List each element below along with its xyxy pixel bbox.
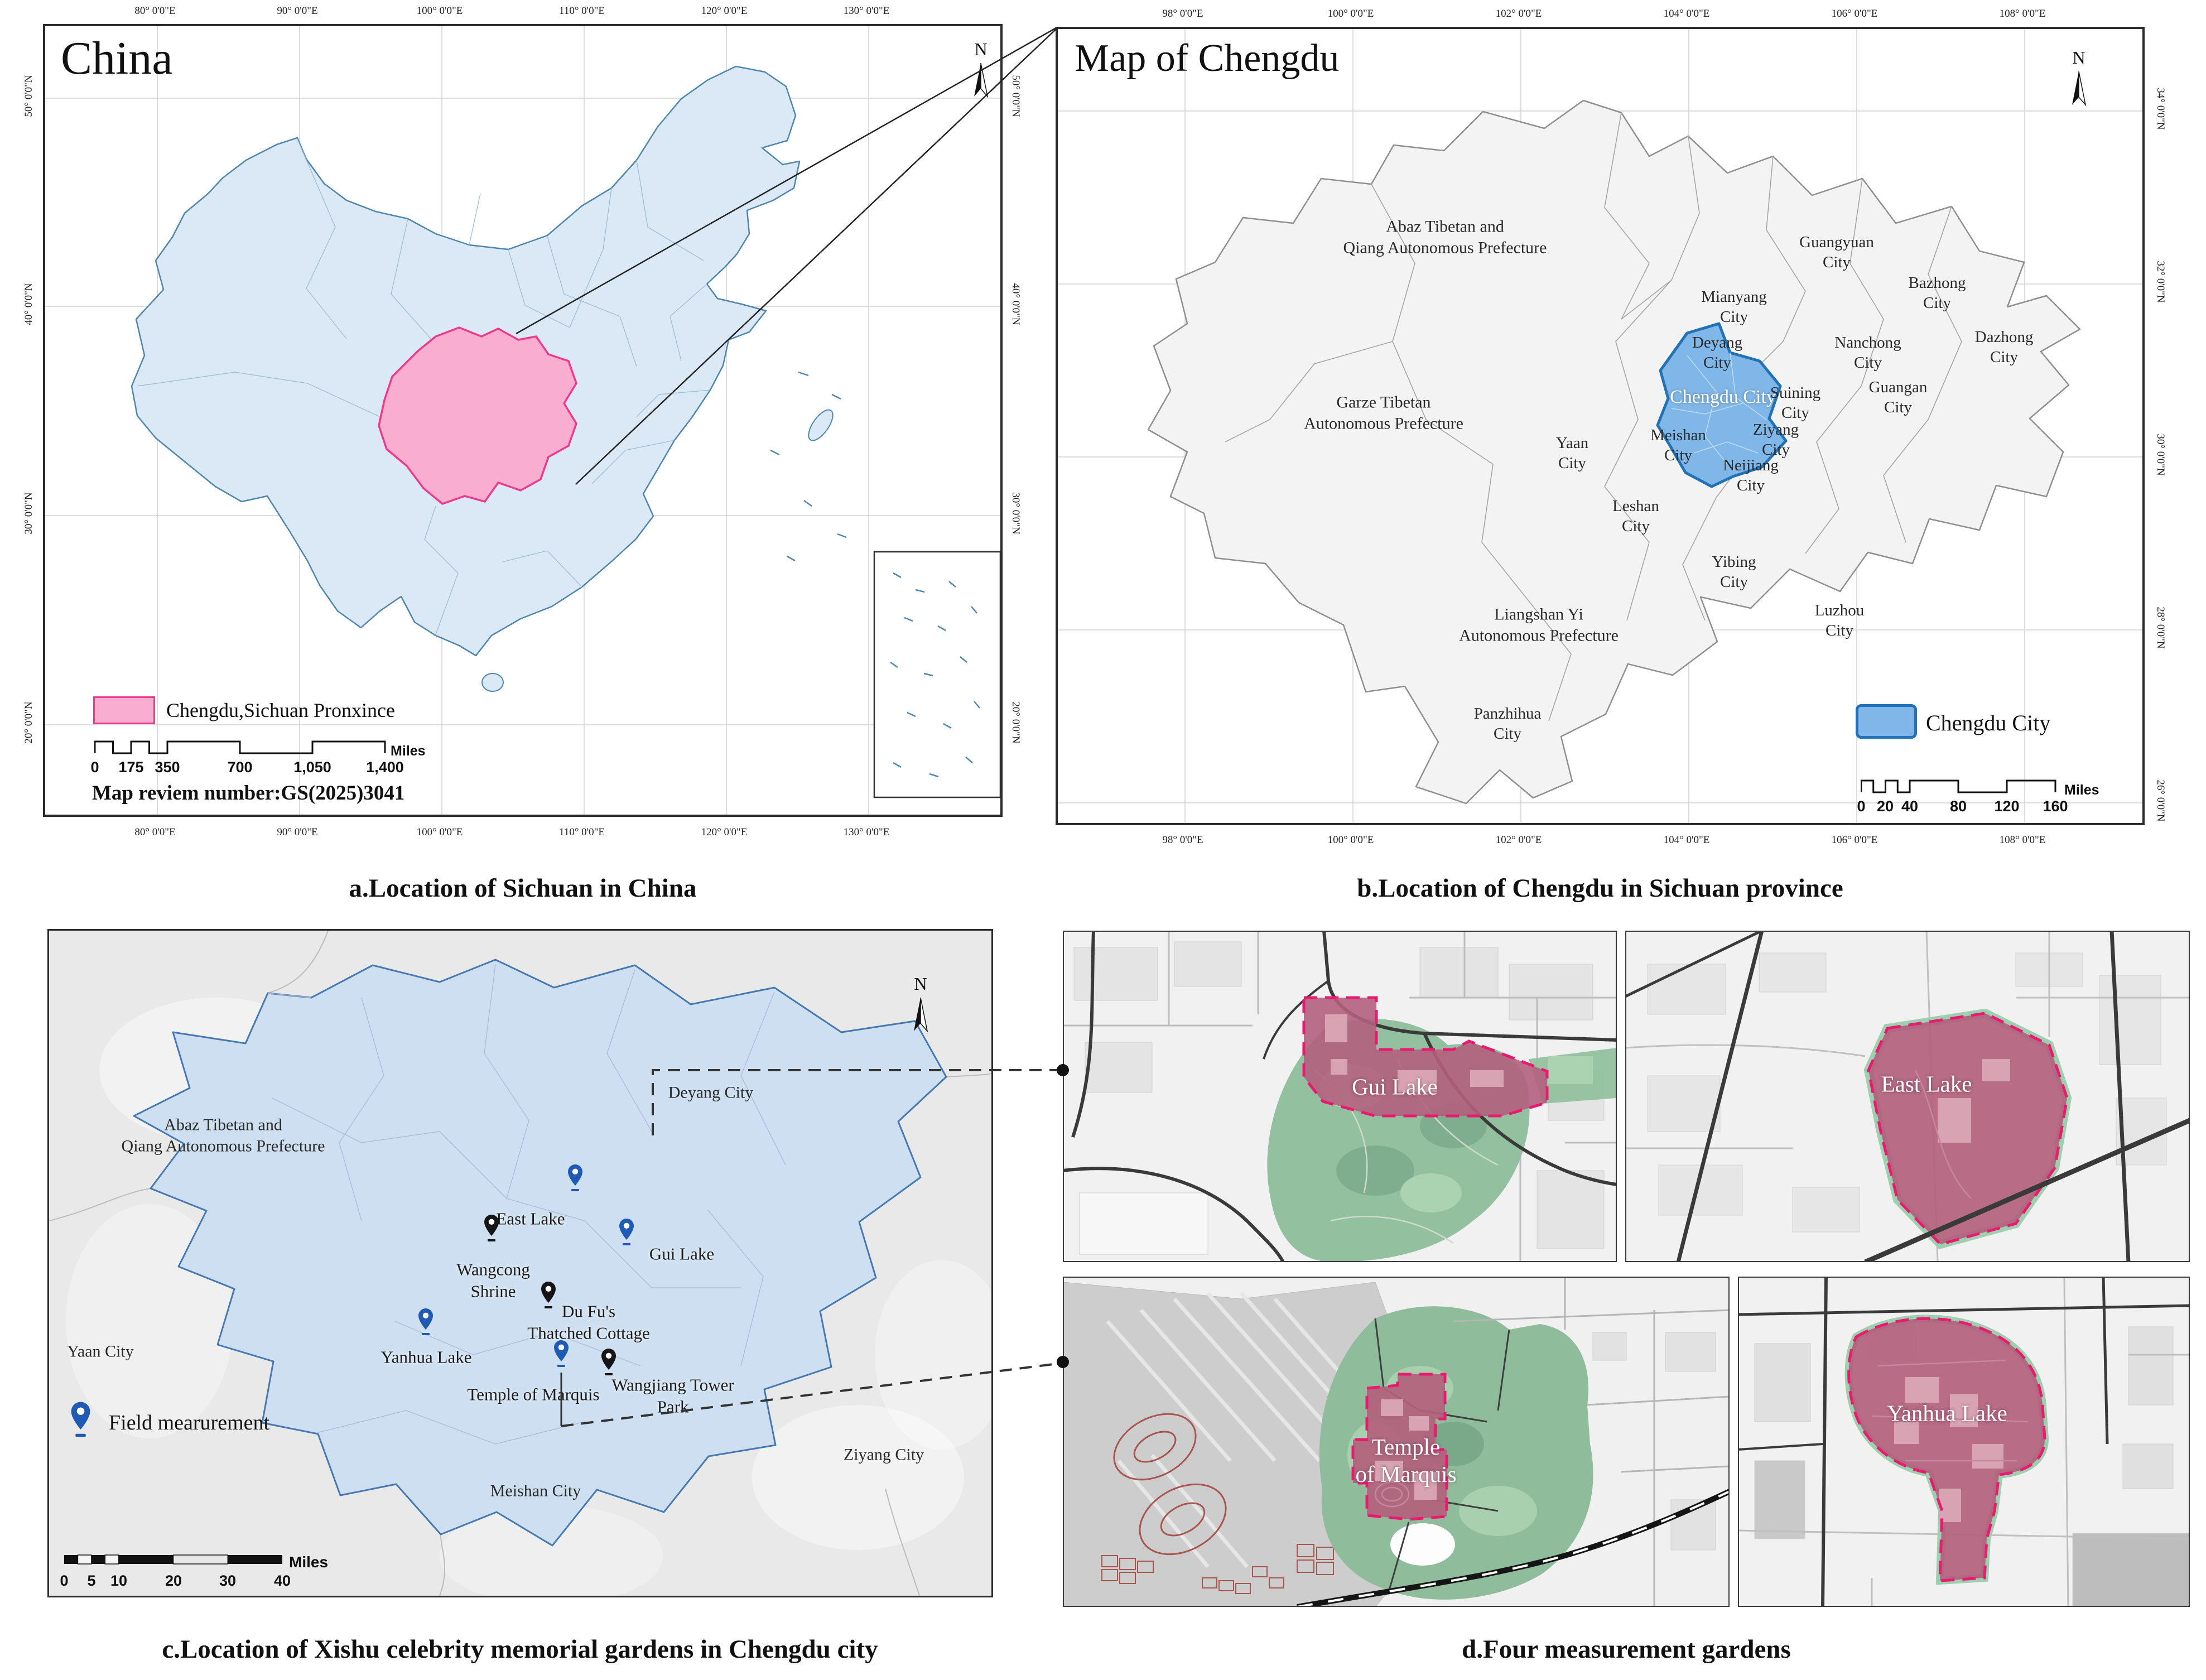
a-xtick-top-5: 130° 0'0"E xyxy=(844,5,890,17)
temple-of-marquis-pin-icon xyxy=(553,1339,570,1371)
scalebar-c-unit: Miles xyxy=(289,1553,328,1571)
scalebar-b-unit: Miles xyxy=(2064,782,2099,798)
region-panzhihua: Panzhihua City xyxy=(1474,704,1542,744)
north-arrow-b: N xyxy=(2068,47,2090,113)
tile-yanhua-lake xyxy=(1738,1277,2190,1607)
c-label-deyang: Deyang City xyxy=(668,1082,753,1103)
field-measurement-pin-icon xyxy=(70,1400,91,1442)
north-label-c: N xyxy=(909,974,932,994)
figure-page: { "colors": { "china_fill": "#dbe9f6", "… xyxy=(0,0,2206,1680)
scalebar-b-4: 120 xyxy=(1994,798,2019,815)
a-ytick-left-0: 50° 0'0"N xyxy=(23,75,35,117)
region-guangan: Guangan City xyxy=(1869,377,1928,418)
map-review-note: Map reviem number:GS(2025)3041 xyxy=(92,781,404,805)
north-label-b: N xyxy=(2068,47,2090,68)
scalebar-c-3: 20 xyxy=(165,1572,182,1590)
yanhua-lake-label: Yanhua Lake xyxy=(380,1347,471,1369)
garden-label-temple: Temple of Marquis xyxy=(1355,1433,1456,1488)
scalebar-a-4: 1,050 xyxy=(293,759,331,776)
scalebar-c-1: 5 xyxy=(87,1572,95,1590)
scalebar-a-1: 175 xyxy=(118,759,143,776)
caption-b: b.Location of Chengdu in Sichuan provinc… xyxy=(1357,873,1843,903)
region-neijiang: Neijiang City xyxy=(1723,455,1779,496)
scalebar-a-0: 0 xyxy=(90,759,99,776)
a-xtick-top-2: 100° 0'0"E xyxy=(417,5,463,17)
legend-a-swatch xyxy=(93,696,155,724)
scalebar-a-2: 350 xyxy=(155,759,180,776)
region-yibing: Yibing City xyxy=(1712,552,1756,593)
panel-a-title: China xyxy=(61,35,173,82)
region-dazhong: Dazhong City xyxy=(1975,327,2034,368)
north-arrow-a: N xyxy=(970,39,992,105)
caption-c: c.Location of Xishu celebrity memorial g… xyxy=(162,1634,878,1664)
region-chengdu: Chengdu City xyxy=(1670,386,1776,410)
region-meishan: Meishan City xyxy=(1650,425,1706,466)
region-guangyuan: Guangyuan City xyxy=(1799,232,1874,273)
gui-lake-pin-icon xyxy=(618,1217,635,1249)
b-xtick-bot-1: 100° 0'0"E xyxy=(1328,834,1374,846)
north-arrow-b-icon xyxy=(2069,69,2088,110)
region-luzhou: Luzhou City xyxy=(1815,600,1865,641)
b-xtick-top-2: 102° 0'0"E xyxy=(1496,8,1542,20)
legend-b-swatch xyxy=(1856,704,1917,739)
a-xtick-top-0: 80° 0'0"E xyxy=(134,5,175,17)
a-xtick-top-1: 90° 0'0"E xyxy=(277,5,317,17)
a-ytick-right-2: 30° 0'0"N xyxy=(1009,492,1022,534)
b-xtick-bot-2: 102° 0'0"E xyxy=(1496,834,1542,846)
hainan-island xyxy=(482,673,503,691)
north-arrow-c: N xyxy=(909,974,932,1039)
a-ytick-left-1: 40° 0'0"N xyxy=(23,283,35,325)
region-nanchong: Nanchong City xyxy=(1834,333,1901,373)
c-label-abaz: Abaz Tibetan and Qiang Autonomous Prefec… xyxy=(122,1115,325,1157)
garden-label-yanhua: Yanhua Lake xyxy=(1887,1399,2007,1427)
b-xtick-top-5: 108° 0'0"E xyxy=(2000,8,2046,20)
region-mianyang: Mianyang City xyxy=(1701,287,1767,328)
yanhua-map-svg xyxy=(1738,1277,2190,1607)
a-xtick-bot-2: 100° 0'0"E xyxy=(417,826,463,839)
b-ytick-1: 32° 0'0"N xyxy=(2154,261,2166,302)
scalebar-a xyxy=(94,740,390,755)
a-xtick-top-4: 120° 0'0"E xyxy=(701,5,748,17)
b-xtick-bot-3: 104° 0'0"E xyxy=(1664,834,1710,846)
legend-b-label: Chengdu City xyxy=(1926,710,2050,736)
panel-b-title: Map of Chengdu xyxy=(1075,39,1339,78)
b-xtick-top-4: 106° 0'0"E xyxy=(1832,8,1878,20)
garden-label-gui-lake: Gui Lake xyxy=(1352,1073,1438,1100)
b-ytick-4: 26° 0'0"N xyxy=(2154,779,2166,821)
a-xtick-bot-0: 80° 0'0"E xyxy=(134,826,175,839)
a-xtick-bot-5: 130° 0'0"E xyxy=(844,826,890,839)
b-ytick-2: 30° 0'0"N xyxy=(2154,434,2166,475)
scalebar-c-5: 40 xyxy=(274,1572,291,1590)
b-xtick-top-1: 100° 0'0"E xyxy=(1328,8,1374,20)
a-ytick-right-1: 40° 0'0"N xyxy=(1009,283,1022,325)
a-ytick-left-2: 30° 0'0"N xyxy=(23,492,35,534)
north-arrow-a-icon xyxy=(971,61,990,102)
region-bazhong: Bazhong City xyxy=(1908,273,1966,314)
scalebar-b-2: 40 xyxy=(1901,798,1918,815)
scalebar-b-3: 80 xyxy=(1950,798,1967,815)
a-xtick-bot-4: 120° 0'0"E xyxy=(701,826,748,839)
region-leshan: Leshan City xyxy=(1612,496,1659,537)
sichuan-map-svg xyxy=(1058,29,2142,823)
b-xtick-bot-0: 98° 0'0"E xyxy=(1162,834,1203,846)
scalebar-b xyxy=(1861,779,2060,795)
north-arrow-c-icon xyxy=(911,995,930,1037)
panel-b-sichuan-map: Map of Chengdu xyxy=(1056,27,2145,825)
south-china-sea-inset-box xyxy=(874,552,1000,797)
a-xtick-bot-3: 110° 0'0"E xyxy=(559,826,605,839)
caption-a: a.Location of Sichuan in China xyxy=(349,873,697,903)
tile-gui-lake xyxy=(1063,931,1617,1262)
legend-a-label: Chengdu,Sichuan Pronxince xyxy=(166,699,395,722)
garden-label-east-lake: East Lake xyxy=(1881,1070,1972,1097)
east-lake-label: East Lake xyxy=(496,1209,565,1230)
region-yaan: Yaan City xyxy=(1556,433,1588,474)
gui-lake-label: Gui Lake xyxy=(649,1244,714,1265)
north-label-a: N xyxy=(970,39,992,60)
scalebar-b-1: 20 xyxy=(1877,798,1894,815)
b-xtick-bot-5: 108° 0'0"E xyxy=(2000,834,2046,846)
region-abaz: Abaz Tibetan and Qiang Autonomous Prefec… xyxy=(1343,216,1547,258)
legend-c-label: Field mearurement xyxy=(109,1411,269,1435)
scalebar-a-unit: Miles xyxy=(391,743,426,759)
east-lake-pin-icon xyxy=(567,1163,584,1195)
gui-lake-map-svg xyxy=(1063,931,1617,1262)
scalebar-a-5: 1,400 xyxy=(366,759,404,776)
yanhua-lake-pin-icon xyxy=(417,1307,434,1339)
caption-d: d.Four measurement gardens xyxy=(1462,1634,1791,1664)
wangcong-shrine-label: Wangcong Shrine xyxy=(456,1259,530,1302)
b-xtick-top-0: 98° 0'0"E xyxy=(1162,8,1203,20)
a-ytick-left-3: 20° 0'0"N xyxy=(23,701,35,743)
region-garze: Garze Tibetan Autonomous Prefecture xyxy=(1304,392,1463,434)
sichuan-outline xyxy=(1148,100,2080,803)
c-label-yaan: Yaan City xyxy=(67,1341,133,1362)
scalebar-c-2: 10 xyxy=(110,1572,127,1590)
c-label-ziyang: Ziyang City xyxy=(844,1444,924,1465)
taiwan-island xyxy=(804,406,837,444)
b-ytick-0: 34° 0'0"N xyxy=(2154,88,2166,129)
panel-a-china-map: China xyxy=(43,24,1003,817)
wangcong-shrine-pin-icon xyxy=(483,1214,500,1245)
pond xyxy=(1390,1523,1455,1566)
china-map-svg xyxy=(45,26,1000,815)
a-xtick-top-3: 110° 0'0"E xyxy=(559,5,605,17)
region-ziyang: Ziyang City xyxy=(1753,420,1799,460)
scalebar-c xyxy=(64,1553,283,1566)
du-fu-cottage-label: Du Fu's Thatched Cottage xyxy=(527,1301,650,1344)
b-xtick-bot-4: 106° 0'0"E xyxy=(1832,834,1878,846)
wangjiang-tower-label: Wangjiang Tower Park xyxy=(611,1374,734,1418)
temple-of-marquis-label: Temple of Marquis xyxy=(467,1384,599,1406)
c-label-meishan: Meishan City xyxy=(490,1480,581,1501)
scalebar-b-5: 160 xyxy=(2043,798,2068,815)
scalebar-c-4: 30 xyxy=(219,1572,236,1590)
b-ytick-3: 28° 0'0"N xyxy=(2154,606,2166,648)
region-deyang: Deyang City xyxy=(1692,333,1742,373)
a-ytick-right-0: 50° 0'0"N xyxy=(1009,75,1022,117)
scalebar-a-3: 700 xyxy=(227,759,252,776)
b-xtick-top-3: 104° 0'0"E xyxy=(1664,8,1710,20)
region-suining: Suining City xyxy=(1770,383,1820,423)
scalebar-b-0: 0 xyxy=(1857,798,1865,815)
a-xtick-bot-1: 90° 0'0"E xyxy=(277,826,317,839)
scalebar-c-0: 0 xyxy=(60,1572,68,1590)
region-liangshan: Liangshan Yi Autonomous Prefecture xyxy=(1459,604,1619,646)
a-ytick-right-3: 20° 0'0"N xyxy=(1009,701,1022,743)
